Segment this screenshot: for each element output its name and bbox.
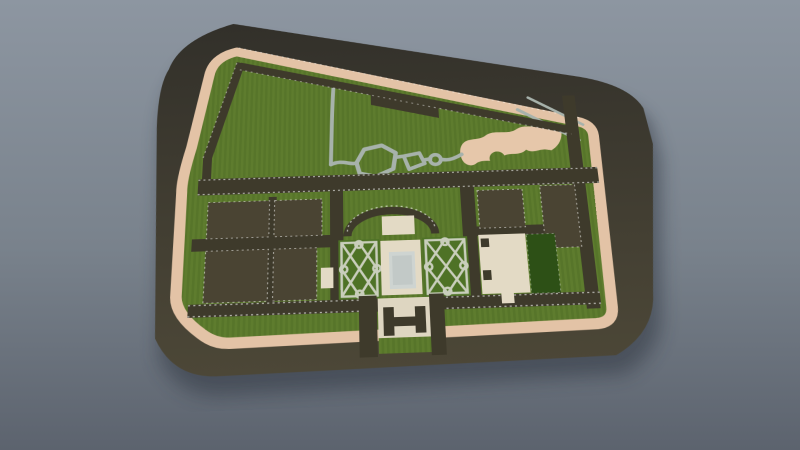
west-pavilion	[321, 267, 334, 288]
arc-terrace	[382, 215, 415, 235]
site-model	[60, 3, 763, 416]
render-viewport[interactable]	[0, 0, 800, 450]
parterre-right	[422, 236, 471, 297]
entrance	[359, 293, 447, 357]
parterre-left	[338, 239, 381, 300]
